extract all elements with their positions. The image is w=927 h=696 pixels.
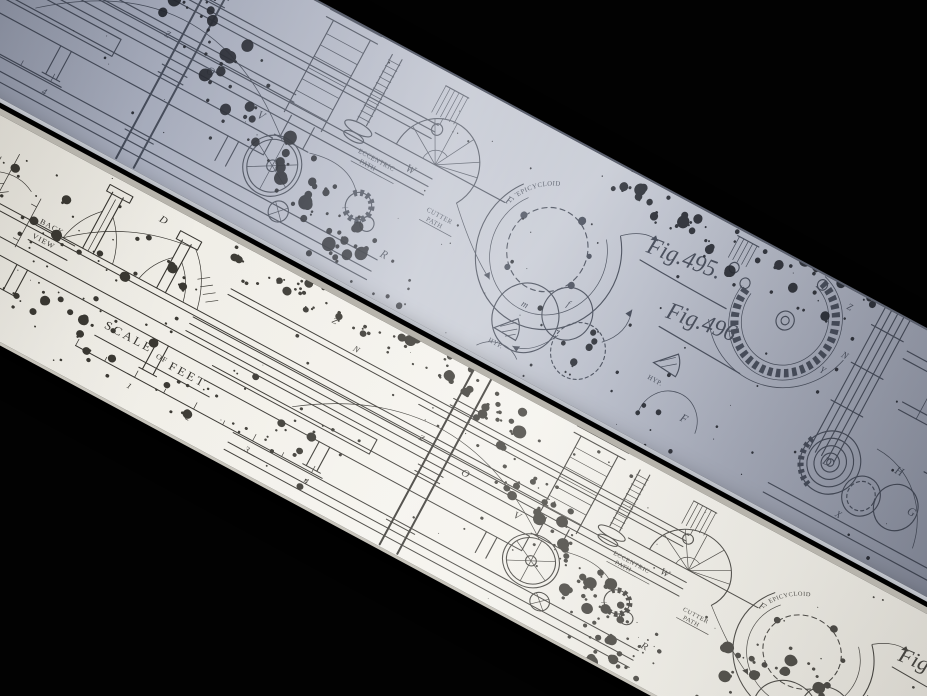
photo-stage xyxy=(0,0,927,696)
